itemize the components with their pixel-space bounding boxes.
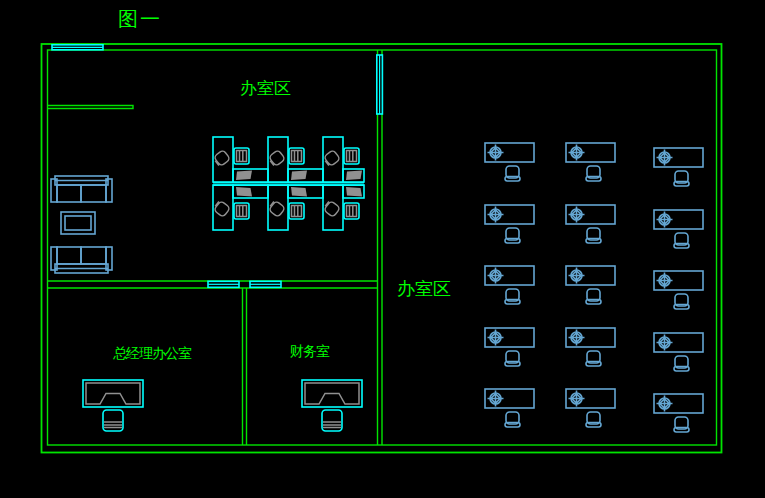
- desk-unit: [485, 389, 534, 427]
- coffee-table-inner: [65, 216, 91, 230]
- manager-desk: [83, 380, 143, 431]
- desk-unit: [485, 266, 534, 304]
- bottom-rooms-divider-wall: [243, 288, 247, 445]
- drawing-title: 图一: [118, 6, 162, 33]
- desk-unit: [566, 205, 615, 243]
- desk-unit: [566, 143, 615, 181]
- sofa-top: [51, 176, 112, 202]
- windows-group: [52, 45, 382, 287]
- label-left-office: 办室区: [240, 77, 291, 100]
- desk-unit: [485, 143, 534, 181]
- desk-unit: [654, 394, 703, 432]
- desk-unit: [566, 389, 615, 427]
- desk-unit: [654, 148, 703, 186]
- desk-unit: [566, 328, 615, 366]
- wall-stub: [48, 106, 134, 109]
- label-manager-office: 总经理办公室: [113, 345, 191, 363]
- desk-unit: [654, 210, 703, 248]
- sofa-bottom: [51, 247, 112, 273]
- desk-unit: [485, 328, 534, 366]
- floorplan-drawing: [0, 0, 765, 498]
- workstation-cluster: [213, 137, 364, 230]
- label-right-office: 办室区: [397, 277, 451, 301]
- desk-grid: [485, 143, 703, 432]
- desk-unit: [654, 271, 703, 309]
- label-finance-room: 财务室: [290, 343, 329, 361]
- cad-floorplan-canvas: 图一 办室区 办室区 总经理办公室 财务室: [0, 0, 765, 498]
- desk-unit: [654, 333, 703, 371]
- sofa-set: [51, 176, 112, 273]
- desk-unit: [566, 266, 615, 304]
- desk-unit: [485, 205, 534, 243]
- finance-desk: [302, 380, 362, 431]
